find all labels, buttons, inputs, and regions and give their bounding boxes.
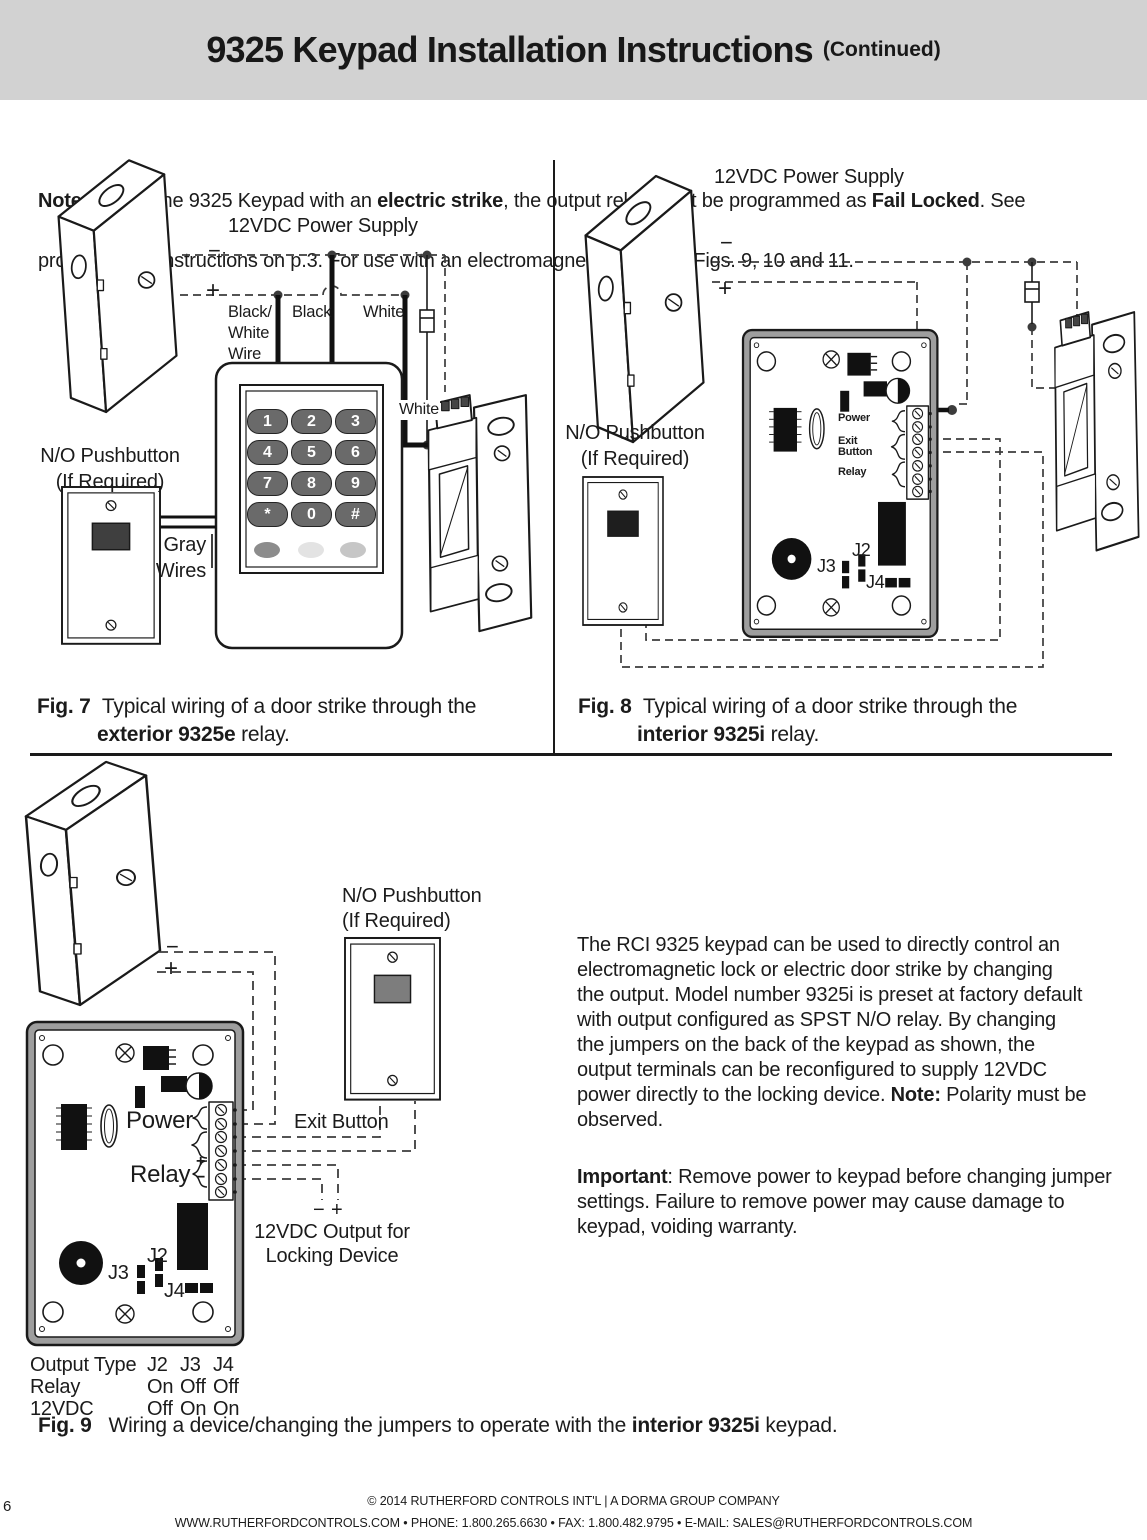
fig9-power-supply-box <box>26 762 160 1005</box>
fig7-gray-wires-label: Gray Wires <box>140 532 206 584</box>
body-line: electromagnetic lock or electric door st… <box>577 958 1112 983</box>
fig9-pcb-power-label: Power <box>126 1106 193 1135</box>
body-seg: : Remove power to keypad before changing… <box>667 1166 1111 1188</box>
fig9-caption-tail: keypad. <box>760 1414 838 1437</box>
keypad-key: 3 <box>335 409 376 434</box>
document-page: 9325 Keypad Installation Instructions (C… <box>0 0 1147 1540</box>
fig7-plus-label: + <box>206 276 220 305</box>
fig9-exit-button-label: Exit Button <box>294 1110 389 1134</box>
table-cell: J2 <box>147 1354 180 1376</box>
fig7-black-wire-label: Black <box>292 302 331 322</box>
fig7-caption-number: Fig. 7 <box>37 695 91 718</box>
body-seg: Polarity must be <box>941 1084 1087 1106</box>
fig9-caption-text: Wiring a device/changing the jumpers to … <box>109 1414 632 1437</box>
fig7-power-supply-label: 12VDC Power Supply <box>228 214 418 238</box>
table-cell: Off <box>180 1376 213 1398</box>
fig7-caption-line2: exterior 9325e relay. <box>97 723 290 747</box>
footer-line2: WWW.RUTHERFORDCONTROLS.COM • PHONE: 1.80… <box>0 1516 1147 1530</box>
fig8-caption: Fig. 8 Typical wiring of a door strike t… <box>578 695 1017 719</box>
fig8-caption-tail: relay. <box>765 723 819 746</box>
fig9-j4-label: J4 <box>164 1279 185 1303</box>
fig8-minus-label: − <box>720 230 733 257</box>
fig9-plus-label: + <box>164 954 178 983</box>
keypad-key: 7 <box>247 471 288 496</box>
fig8-pushbutton-label: N/O Pushbutton (If Required) <box>555 420 715 472</box>
footer-line1: © 2014 RUTHERFORD CONTROLS INT'L | A DOR… <box>0 1494 1147 1508</box>
fig8-pcb-relay-label: Relay <box>838 466 866 479</box>
keypad-key: 1 <box>247 409 288 434</box>
fig9-caption: Fig. 9 Wiring a device/changing the jump… <box>38 1414 838 1438</box>
keypad-key: 4 <box>247 440 288 465</box>
keypad-key: * <box>247 502 288 527</box>
keypad-key: 6 <box>335 440 376 465</box>
fig9-output-minus-label: − <box>313 1198 324 1222</box>
fig8-caption-bold: interior 9325i <box>637 723 765 746</box>
body-line: the jumpers on the back of the keypad as… <box>577 1033 1112 1058</box>
table-cell: On <box>147 1376 180 1398</box>
fig7-caption: Fig. 7 Typical wiring of a door strike t… <box>37 695 476 719</box>
table-cell: J4 <box>213 1354 243 1376</box>
table-cell: Off <box>213 1376 243 1398</box>
fig8-caption-text: Typical wiring of a door strike through … <box>643 695 1017 718</box>
keypad-keys: 1 2 3 4 5 6 7 8 9 * 0 # <box>247 409 376 527</box>
keypad-led-3 <box>340 542 366 558</box>
fig7-caption-bold: exterior 9325e <box>97 723 235 746</box>
fig9-pushbutton-label: N/O Pushbutton (If Required) <box>342 884 482 934</box>
fig9-pcb-relay-label: Relay <box>130 1160 190 1189</box>
fig8-keypad-pcb <box>743 330 937 637</box>
body-line: the output. Model number 9325i is preset… <box>577 983 1112 1008</box>
body-paragraph-2: Important: Remove power to keypad before… <box>577 1165 1112 1240</box>
body-line: power directly to the locking device. No… <box>577 1083 1112 1108</box>
diagram-artwork <box>0 0 1147 1540</box>
fig8-caption-number: Fig. 8 <box>578 695 632 718</box>
keypad-key: 5 <box>291 440 332 465</box>
fig8-pcb-exit-label: Exit Button <box>838 436 872 458</box>
fig7-pushbutton-label: N/O Pushbutton (If Required) <box>30 443 190 495</box>
keypad-key: 9 <box>335 471 376 496</box>
keypad-key: # <box>335 502 376 527</box>
jumper-table: Output TypeJ2J3J4 RelayOnOffOff 12VDCOff… <box>30 1354 243 1420</box>
table-cell: Output Type <box>30 1354 147 1376</box>
fig7-caption-tail: relay. <box>235 723 289 746</box>
keypad-key: 8 <box>291 471 332 496</box>
body-line: keypad, voiding warranty. <box>577 1215 1112 1240</box>
fig7-white-wire-label: White <box>363 302 404 322</box>
fig9-caption-number: Fig. 9 <box>38 1414 92 1437</box>
fig8-caption-line2: interior 9325i relay. <box>637 723 819 747</box>
fig7-door-strike <box>429 395 532 631</box>
fig7-blackwhite-wire-label: Black/ White Wire <box>228 302 272 365</box>
body-line: settings. Failure to remove power may ca… <box>577 1190 1112 1215</box>
fig8-j4-label: J4 <box>866 572 885 594</box>
fig8-power-supply-label: 12VDC Power Supply <box>714 165 904 189</box>
table-header-row: Output TypeJ2J3J4 <box>30 1354 243 1376</box>
body-line: The RCI 9325 keypad can be used to direc… <box>577 933 1112 958</box>
fig9-pushbutton-plate <box>345 938 440 1100</box>
fig7-caption-text: Typical wiring of a door strike through … <box>102 695 476 718</box>
table-row: RelayOnOffOff <box>30 1376 243 1398</box>
fig7-minus-label: − <box>208 238 221 265</box>
fig9-relay-minus-label: − <box>196 1168 205 1188</box>
fig8-plus-label: + <box>718 274 732 303</box>
fig9-j3-label: J3 <box>108 1261 129 1285</box>
fig9-j2-label: J2 <box>147 1244 168 1268</box>
body-line: Important: Remove power to keypad before… <box>577 1165 1112 1190</box>
body-note-bold: Note: <box>891 1084 941 1106</box>
keypad-led-1 <box>254 542 280 558</box>
fig8-power-supply-box <box>586 176 704 442</box>
keypad-key: 0 <box>291 502 332 527</box>
table-cell: J3 <box>180 1354 213 1376</box>
fig7-white-wire-label2: White <box>398 400 440 420</box>
body-important-bold: Important <box>577 1166 667 1188</box>
fig9-caption-bold: interior 9325i <box>632 1414 760 1437</box>
body-paragraph-1: The RCI 9325 keypad can be used to direc… <box>577 933 1112 1133</box>
fig7-power-supply-box <box>59 160 177 412</box>
keypad-key: 2 <box>291 409 332 434</box>
fig8-j2-label: J2 <box>852 540 871 562</box>
keypad-led-2 <box>298 542 324 558</box>
fig8-pcb-power-label: Power <box>838 412 870 425</box>
table-cell: Relay <box>30 1376 147 1398</box>
body-line: observed. <box>577 1108 1112 1133</box>
fig9-output-plus-label: + <box>331 1198 342 1222</box>
fig8-door-strike <box>1055 312 1139 550</box>
body-seg: power directly to the locking device. <box>577 1084 891 1106</box>
body-line: with output configured as SPST N/O relay… <box>577 1008 1112 1033</box>
body-line: output terminals can be reconfigured to … <box>577 1058 1112 1083</box>
fig9-output-label: 12VDC Output for Locking Device <box>246 1220 418 1268</box>
fig8-j3-label: J3 <box>817 556 836 578</box>
fig8-pushbutton-plate <box>583 477 663 625</box>
